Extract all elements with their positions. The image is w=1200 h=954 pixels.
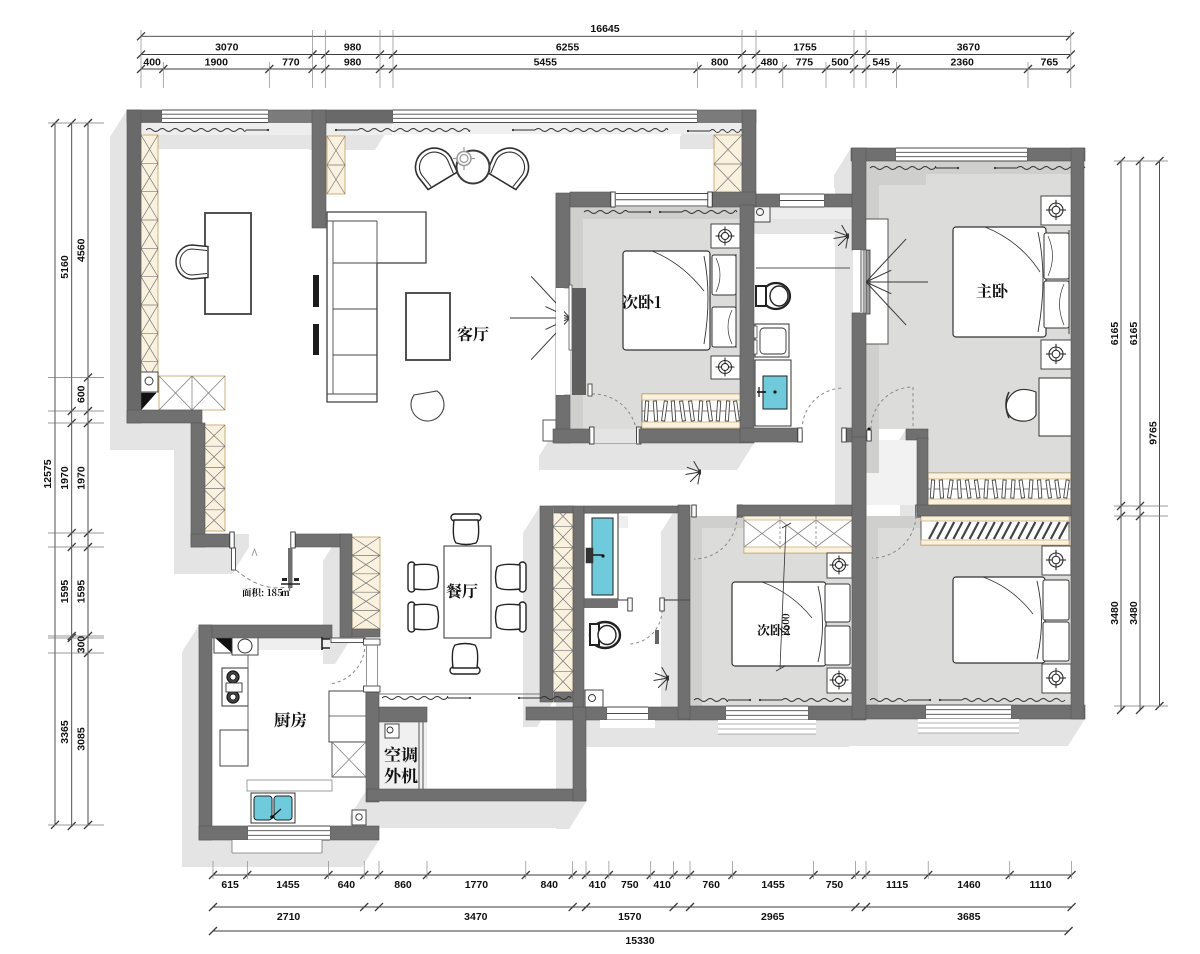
svg-text:400: 400 [143,57,161,69]
svg-text:615: 615 [221,879,239,891]
svg-text:1970: 1970 [59,466,71,490]
svg-text:1595: 1595 [59,580,71,604]
svg-text:1460: 1460 [957,879,981,891]
svg-text:3085: 3085 [76,727,88,751]
svg-text:750: 750 [826,879,844,891]
svg-text:500: 500 [831,57,849,69]
svg-text:410: 410 [653,879,671,891]
svg-text:3670: 3670 [957,42,981,54]
svg-text:410: 410 [589,879,607,891]
svg-text:1770: 1770 [465,879,489,891]
svg-text:1570: 1570 [618,911,642,923]
svg-text:1115: 1115 [886,879,908,891]
svg-text:765: 765 [1041,57,1059,69]
svg-text:750: 750 [621,879,639,891]
svg-text:545: 545 [872,57,890,69]
svg-text:5455: 5455 [534,57,558,69]
svg-text:6165: 6165 [1109,322,1121,346]
svg-text:980: 980 [344,42,362,54]
svg-text:16645: 16645 [590,23,619,35]
svg-text:800: 800 [711,57,729,69]
svg-text:1595: 1595 [76,580,88,604]
svg-text:600: 600 [76,385,88,403]
svg-text:860: 860 [394,879,412,891]
svg-text:640: 640 [338,879,356,891]
svg-text:3070: 3070 [215,42,239,54]
svg-text:3685: 3685 [957,911,981,923]
svg-text:4560: 4560 [76,238,88,262]
svg-text:9765: 9765 [1148,421,1160,445]
svg-text:1970: 1970 [76,466,88,490]
svg-text:1455: 1455 [761,879,785,891]
svg-text:840: 840 [540,879,558,891]
svg-text:1110: 1110 [1030,879,1052,891]
svg-text:3365: 3365 [59,720,71,744]
svg-text:2360: 2360 [951,57,975,69]
svg-text:3480: 3480 [1128,601,1140,625]
svg-text:15330: 15330 [625,935,654,947]
svg-text:2965: 2965 [761,911,785,923]
svg-text:6255: 6255 [556,42,580,54]
svg-text:980: 980 [344,57,362,69]
svg-text:3480: 3480 [1109,601,1121,625]
svg-text:770: 770 [282,57,300,69]
svg-text:760: 760 [702,879,720,891]
svg-text:2710: 2710 [277,911,301,923]
svg-text:480: 480 [761,57,779,69]
svg-text:1900: 1900 [205,57,229,69]
svg-text:3470: 3470 [464,911,488,923]
svg-text:5160: 5160 [59,255,71,279]
svg-text:775: 775 [796,57,814,69]
svg-text:6165: 6165 [1128,322,1140,346]
svg-text:12575: 12575 [42,459,54,488]
svg-text:1755: 1755 [793,42,817,54]
svg-text:1455: 1455 [276,879,300,891]
